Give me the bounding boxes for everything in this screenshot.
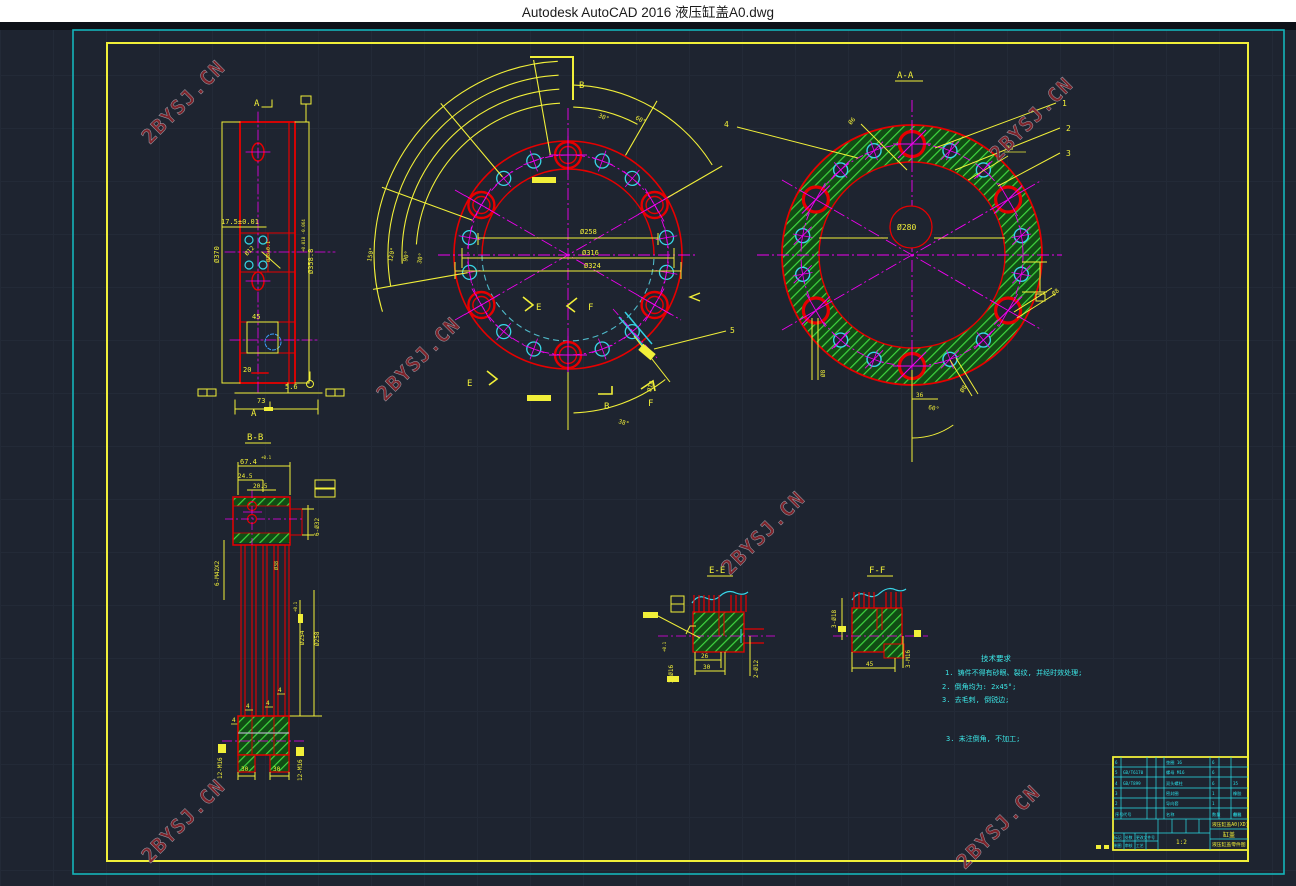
- dim-30-right: 30: [273, 766, 281, 773]
- dim-2-d16-tol: +0.1: [662, 641, 667, 652]
- dim-d8-bottom: Ø8: [959, 384, 969, 394]
- ee-stud-lines: [694, 595, 746, 612]
- section-ff-title: F-F: [869, 566, 885, 576]
- svg-text:橡胶: 橡胶: [1233, 790, 1241, 797]
- window-title: Autodesk AutoCAD 2016 液压缸盖A0.dwg: [522, 1, 774, 21]
- direction-arrow: [690, 293, 700, 301]
- top-strip: [0, 22, 1296, 30]
- tb-doc-name: 液压缸盖零件图: [1212, 841, 1246, 848]
- watermark-text: 2BYSJ.CN: [717, 486, 811, 580]
- angle-120: 120°: [387, 247, 397, 263]
- svg-text:4: 4: [1115, 781, 1118, 786]
- svg-text:3: 3: [1115, 791, 1118, 796]
- svg-text:垫圈 16: 垫圈 16: [1166, 759, 1182, 766]
- svg-text:4: 4: [232, 717, 236, 724]
- dim-d358: Ø358.8: [307, 249, 315, 274]
- section-a-top-label: A: [254, 99, 260, 109]
- watermark-text: 2BYSJ.CN: [952, 780, 1046, 874]
- svg-text:导向套: 导向套: [1166, 800, 1179, 807]
- dim-6-m42: 6-M42X2: [214, 560, 221, 586]
- angle-90: 90°: [402, 250, 411, 262]
- section-ff: F-F 3-Ø18 45 3-M16: [831, 566, 928, 672]
- svg-text:6: 6: [1212, 770, 1215, 775]
- cut-b-bottom: B: [604, 402, 609, 412]
- watermark-text: 2BYSJ.CN: [137, 55, 231, 149]
- dim-17-5: 17.5±0.01: [221, 218, 259, 226]
- dim-d258-bb: Ø258: [314, 631, 321, 646]
- angle-30-left: 30°: [416, 252, 425, 264]
- balloon-2: 2: [1066, 124, 1071, 133]
- tb-part-name: 缸盖: [1223, 831, 1235, 839]
- dim-3-m16: 3-M16: [905, 650, 912, 668]
- svg-text:GB/T6170: GB/T6170: [1123, 770, 1144, 775]
- dim-d324: Ø324: [584, 262, 601, 270]
- svg-text:1: 1: [1212, 791, 1215, 796]
- balloon-3: 3: [1066, 149, 1071, 158]
- dim-30-ee: 30: [703, 664, 711, 671]
- svg-text:2: 2: [1115, 801, 1118, 806]
- front-view: 150° 120° 90° 30° 30° 60° B Ø258: [366, 57, 735, 430]
- dim-12-m16-left: 12-M16: [217, 757, 224, 779]
- dim-73: 73: [257, 397, 265, 405]
- svg-text:6: 6: [1212, 781, 1215, 786]
- dim-d258: Ø258: [580, 228, 597, 236]
- dim-d38-side: Ø38±0.1: [265, 241, 272, 262]
- dim-d254: Ø254: [299, 630, 306, 645]
- dim-12-m16-right: 12-M16: [297, 759, 304, 781]
- dim-20: 20: [243, 366, 251, 374]
- notes-heading: 技术要求: [981, 653, 1011, 663]
- dim-3-d18: 3-Ø18: [831, 610, 838, 628]
- tb-scale: 1:2: [1176, 839, 1187, 846]
- watermark-text: 2BYSJ.CN: [985, 72, 1079, 166]
- svg-text:备注: 备注: [1233, 811, 1242, 818]
- dim-d12: Ø12: [243, 245, 256, 258]
- svg-text:4: 4: [266, 700, 270, 707]
- dim-d316: Ø316: [582, 249, 599, 257]
- balloon-4: 4: [724, 120, 729, 129]
- svg-text:35: 35: [1233, 781, 1239, 786]
- svg-text:6: 6: [1115, 760, 1118, 765]
- svg-text:数量: 数量: [1212, 811, 1220, 818]
- balloon-5: 5: [730, 326, 735, 335]
- window-titlebar[interactable]: Autodesk AutoCAD 2016 液压缸盖A0.dwg: [0, 0, 1296, 22]
- dim-24-5: 24.5: [238, 473, 253, 480]
- tech-notes: 技术要求 1. 铸件不得有砂眼、裂纹, 并经时效处理; 2. 倒角均为: 2x4…: [942, 653, 1082, 743]
- svg-text:标记: 标记: [1114, 835, 1122, 840]
- note-line-2: 2. 倒角均为: 2x45°;: [942, 682, 1016, 691]
- section-ee: E-E: [643, 566, 775, 683]
- svg-text:5: 5: [1115, 770, 1118, 775]
- side-view: A A Ø370 17.5±0.01 Ø12 Ø38±0.1 Ø358.8 +0…: [198, 96, 344, 419]
- note-line-1: 1. 铸件不得有砂眼、裂纹, 并经时效处理;: [945, 668, 1082, 677]
- tb-code: 液压缸盖A0(XD): [1212, 821, 1249, 828]
- svg-text:4: 4: [278, 687, 282, 694]
- angle-38: 38°: [617, 418, 629, 428]
- dim-d254-tol: +0.1: [293, 601, 298, 612]
- dim-67-4: 67.4: [240, 458, 257, 466]
- dim-d358-tol: +0.018 -0.064: [301, 219, 306, 252]
- dim-2-d12: 2-Ø12: [753, 660, 760, 678]
- svg-text:1: 1: [1212, 801, 1215, 806]
- svg-text:密封圈: 密封圈: [1166, 790, 1179, 797]
- cut-e-outer: E: [467, 379, 472, 389]
- watermark-text: 2BYSJ.CN: [372, 312, 466, 406]
- cut-b-top: B: [579, 81, 584, 91]
- section-bb-title: B-B: [247, 433, 263, 443]
- autocad-window: Autodesk AutoCAD 2016 液压缸盖A0.dwg: [0, 0, 1296, 886]
- drawing-canvas[interactable]: A A Ø370 17.5±0.01 Ø12 Ø38±0.1 Ø358.8 +0…: [0, 22, 1296, 886]
- section-bb: B-B: [214, 433, 335, 781]
- dim-30-left: 30: [241, 766, 249, 773]
- angle-30-top: 30°: [597, 112, 610, 123]
- dim-45: 45: [252, 313, 260, 321]
- dim-45-ff: 45: [866, 661, 874, 668]
- svg-text:GB/T899: GB/T899: [1123, 781, 1141, 786]
- title-block: 6垫圈 1665GB/T6170螺母 M1664GB/T899双头螺柱6353密…: [1096, 757, 1249, 850]
- dim-6-d32: 6-Ø32: [314, 518, 321, 536]
- svg-text:工艺: 工艺: [1136, 843, 1144, 848]
- svg-text:处数: 处数: [1125, 835, 1133, 840]
- bb-stud-lines: [241, 545, 289, 716]
- angle-60-bottom: 60°: [928, 404, 940, 413]
- angle-60-top: 60°: [634, 115, 647, 126]
- dim-2-d16: 2-Ø16: [668, 665, 675, 683]
- angle-dim-arcs: [373, 60, 722, 312]
- section-aa-title: A-A: [897, 71, 914, 81]
- dim-26: 26: [701, 653, 709, 660]
- dim-d280: Ø280: [897, 222, 916, 232]
- angle-60-arc: [912, 425, 953, 438]
- svg-text:螺母 M16: 螺母 M16: [1166, 769, 1185, 776]
- svg-text:双头螺柱: 双头螺柱: [1166, 780, 1184, 787]
- dim-36: 36: [916, 392, 924, 399]
- dim-d8-left: Ø8: [820, 369, 827, 377]
- watermark-text: 2BYSJ.CN: [137, 774, 231, 868]
- svg-text:制图: 制图: [1114, 843, 1122, 848]
- svg-text:名称: 名称: [1166, 811, 1174, 818]
- svg-text:4: 4: [246, 703, 250, 710]
- section-a-bottom-label: A: [251, 409, 257, 419]
- svg-text:更改文件号: 更改文件号: [1136, 835, 1155, 840]
- note-line-3: 3. 去毛刺, 倒锐边;: [942, 695, 1009, 704]
- dim-d6-topleft: Ø6: [847, 116, 857, 126]
- note-line-4: 3. 未注倒角, 不加工;: [946, 734, 1020, 743]
- dim-d370: Ø370: [213, 246, 221, 263]
- cut-e-inner: E: [536, 303, 541, 313]
- cut-f-inner: F: [588, 303, 593, 313]
- dim-20-5: 20.5: [253, 483, 268, 490]
- drawing-svg: A A Ø370 17.5±0.01 Ø12 Ø38±0.1 Ø358.8 +0…: [0, 22, 1296, 886]
- svg-text:6: 6: [1212, 760, 1215, 765]
- dim-5-6: 5.6: [285, 383, 298, 391]
- svg-text:代号: 代号: [1123, 811, 1131, 818]
- dim-67-4-tol: +0.1: [261, 455, 272, 460]
- dim-d38-bb: Ø38: [273, 561, 280, 570]
- cut-f-outer: F: [648, 399, 653, 409]
- svg-text:审核: 审核: [1125, 843, 1133, 848]
